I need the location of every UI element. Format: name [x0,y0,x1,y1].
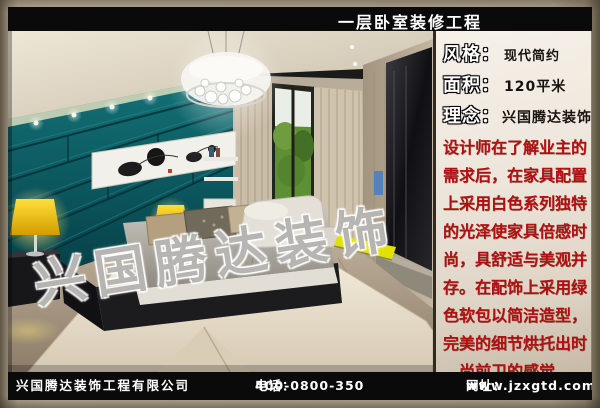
tv-panel [386,47,432,271]
page-title: 一层卧室装修工程 [338,9,482,31]
bedroom-illustration [8,31,433,372]
field-style: 风格： 现代简约 [443,40,586,66]
info-panel: 风格： 现代简约 面积： 120平米 理念： 兴国腾达装饰 设计师在了解业主的需… [436,31,592,372]
field-label: 面积： [443,71,500,97]
field-label: 风格： [443,40,500,66]
company-name: 兴国腾达装饰工程有限公司 [16,372,190,400]
project-description: 设计师在了解业主的需求后，在家具配置上采用白色系列独特的光泽使家具倍感时尚，具舒… [443,134,587,386]
phone-number: 400-0800-350 [255,372,364,400]
nightstand [8,249,60,307]
field-value: 120平米 [504,76,566,96]
website-url: www.jzxgtd.com [466,372,592,400]
blue-decor [374,171,383,195]
field-label: 理念： [443,102,500,128]
field-area: 面积： 120平米 [443,71,586,97]
title-bar: 一层卧室装修工程 [8,7,592,31]
photo-bottom-shadow [8,365,433,372]
photo-left-shadow [8,31,12,372]
bedroom-photo: 兴国腾达装饰 [8,31,433,372]
footer-bar: 兴国腾达装饰工程有限公司 电话：400-0800-350 网址：www.jzxg… [8,372,592,400]
field-value: 兴国腾达装饰 [502,107,592,127]
poster-frame: 一层卧室装修工程 [0,0,600,408]
field-concept: 理念： 兴国腾达装饰 [443,102,586,128]
field-value: 现代简约 [504,45,560,64]
